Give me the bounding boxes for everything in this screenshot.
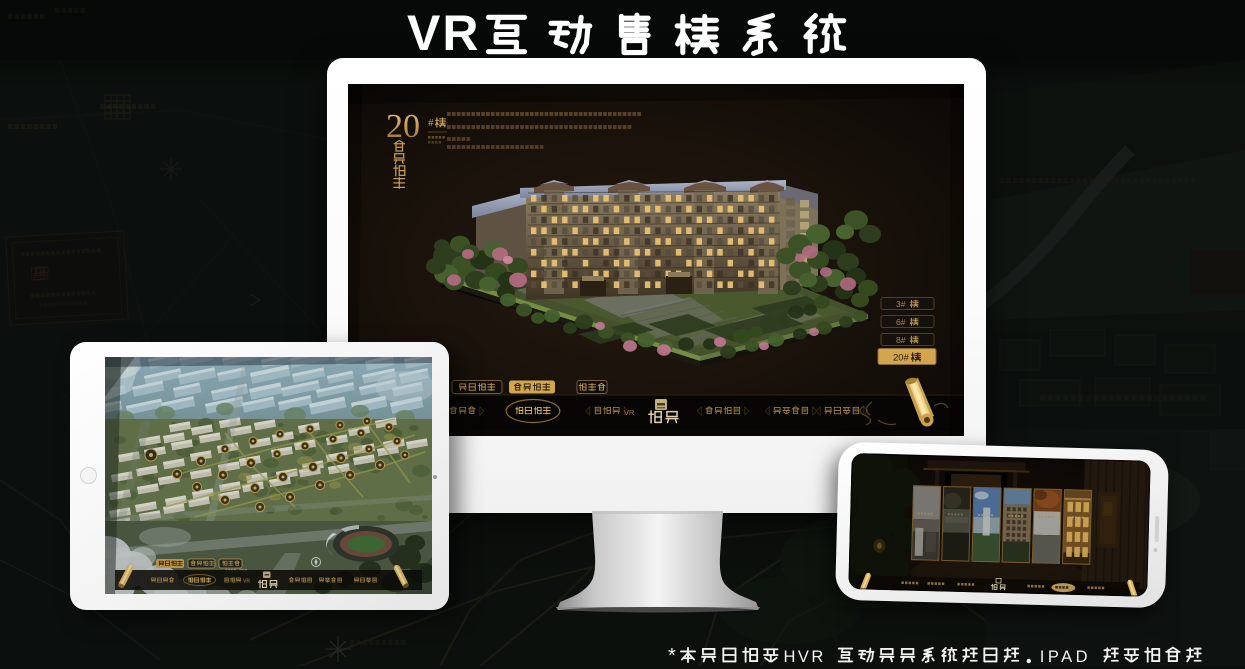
svg-text:3#: 3# (896, 299, 906, 309)
svg-text:20#: 20# (893, 352, 910, 363)
svg-text:VR: VR (407, 5, 480, 60)
svg-text:IPAD: IPAD (1040, 648, 1091, 666)
svg-text:20: 20 (386, 108, 420, 145)
svg-text:VR: VR (624, 408, 635, 417)
svg-text:*: * (668, 645, 676, 667)
svg-text:HVR: HVR (784, 648, 826, 666)
svg-text:8#: 8# (896, 335, 906, 345)
svg-text:6#: 6# (896, 317, 906, 327)
svg-text:#: # (428, 117, 434, 129)
